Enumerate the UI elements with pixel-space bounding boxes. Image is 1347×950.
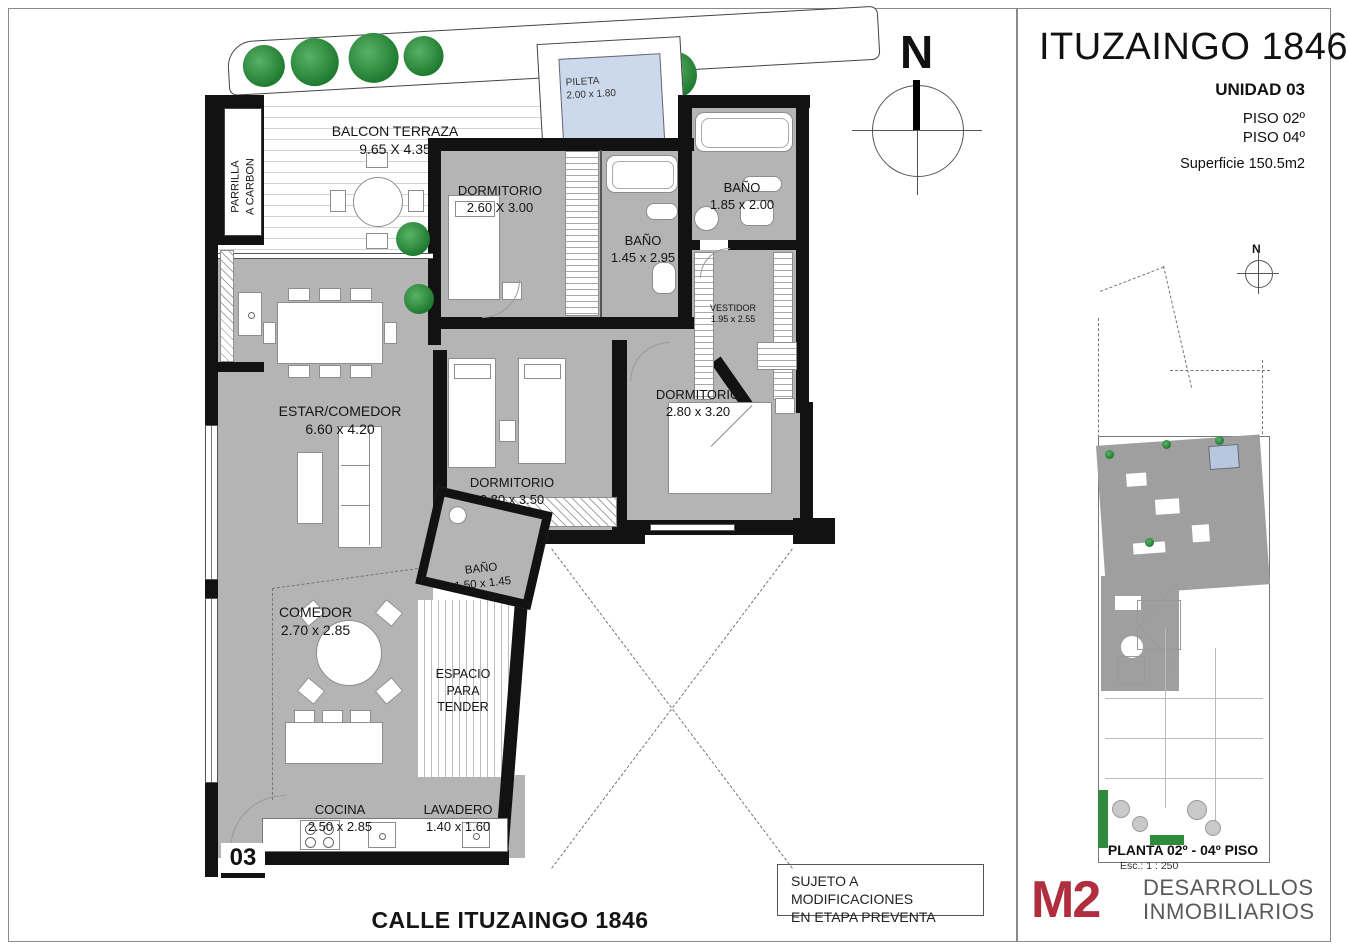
bed [448,358,496,468]
mini-plant [1162,440,1171,449]
pillow [524,364,561,379]
grill-sink [238,292,262,336]
nightstand [775,398,795,414]
chair [350,288,372,301]
grill-niche [220,250,234,362]
room-label-bano-2: BAÑO1.85 x 2.00 [687,163,797,231]
chair [408,190,424,212]
page-title: ITUZAINGO 1846 [1039,26,1347,69]
floor-label-1: PISO 02º [1243,110,1305,127]
mini-room-line [1165,628,1166,808]
mini-compass-n: N [1252,242,1261,256]
wall [428,317,694,329]
mini-compass-circle [1245,260,1273,288]
chair [288,288,310,301]
wall [796,245,809,413]
room-label-bano-1: BAÑO1.45 x 2.95 [593,216,693,284]
logo-wordmark: DESARROLLOS INMOBILIARIOS [1143,876,1315,924]
coffee-table [297,452,323,524]
room-label-dormitorio-3: DORMITORIO2.80 x 3.50 [442,458,582,526]
chair [319,288,341,301]
room-label-dormitorio-2: DORMITORIO2.80 x 3.20 [628,370,768,438]
plant [402,35,444,77]
wall [678,95,810,108]
mini-tree [1187,800,1207,820]
kitchen-island [285,722,383,764]
floor-label-2: PISO 04º [1243,129,1305,146]
stool [350,710,371,723]
plant [404,284,434,314]
mini-room-line [1105,738,1263,739]
window [650,524,735,531]
mini-compass-line [1258,252,1259,294]
room-label-pileta: PILETA2.00 x 1.80 [565,60,638,116]
window [205,598,218,783]
chair [263,322,276,344]
tub-inner [701,118,789,148]
compass-n-letter: N [900,25,933,79]
chair [319,365,341,378]
chair [350,365,372,378]
mini-room-line [1215,648,1216,823]
chair [330,190,346,212]
sofa-cushion-line [341,505,369,506]
unit-number-badge: 03 [221,843,265,878]
glass-wall [218,253,433,259]
mini-plan-caption: PLANTA 02º - 04º PISO [1103,842,1263,858]
closet [773,252,793,400]
room-label-cocina: COCINA2.50 x 2.85 [290,785,390,853]
mini-furniture [1192,524,1210,542]
wall [796,108,809,248]
room-label-parrilla: PARRILLA A CARBON [214,127,271,247]
mini-plant [1105,450,1114,459]
room-label-comedor: COMEDOR2.70 x 2.85 [273,585,358,658]
mini-tree [1112,800,1130,818]
room-label-lavadero: LAVADERO1.40 x 1.60 [406,785,510,853]
parrilla-box: PARRILLA A CARBON [224,108,262,236]
mini-plant [1145,538,1154,547]
disclaimer-box: SUJETO A MODIFICACIONES EN ETAPA PREVENT… [777,864,984,916]
bathtub [606,155,678,193]
logo-line2: INMOBILIARIOS [1143,900,1315,924]
sofa-cushion-line [341,465,369,466]
room-label-dormitorio-1: DORMITORIO2.60 X 3.00 [430,166,570,234]
stool [294,710,315,723]
mini-plan-scale: Esc.: 1 : 250 [1120,860,1178,872]
mini-furniture [1155,498,1180,515]
chair [288,365,310,378]
mini-lot-line [1170,370,1270,371]
closet [757,342,797,370]
mini-plant [1215,436,1224,445]
pillow [454,364,491,379]
room-label-tender: ESPACIO PARA TENDER [423,650,503,731]
mini-unit-footprint [1096,434,1270,595]
info-panel: ITUZAINGO 1846 UNIDAD 03 PISO 02º PISO 0… [1017,8,1331,942]
mini-stairs [1137,600,1181,650]
mini-tree [1205,820,1221,836]
chair [384,322,397,344]
street-label: CALLE ITUZAINGO 1846 [330,876,690,950]
disclaimer-line1: SUJETO A MODIFICACIONES [791,872,983,908]
logo-line1: DESARROLLOS [1143,876,1315,900]
mini-pool [1208,444,1240,470]
room-label-vestidor: VESTIDOR1.95 x 2.55 [693,291,773,338]
room-label-bano-3: BAÑO1.50 x 1.45 [434,542,530,611]
mini-room-line [1105,778,1263,779]
window [205,425,218,580]
chair [366,233,388,249]
mini-elevator [1117,656,1145,684]
plant [289,37,340,88]
plant [242,44,286,88]
wall [218,362,264,372]
disclaimer-line2: EN ETAPA PREVENTA [791,908,983,926]
bathtub [695,112,793,152]
dining-table [277,302,383,364]
balcony-table [353,177,403,227]
nightstand [499,420,516,442]
mini-tree [1132,816,1148,832]
bed [518,358,566,464]
mini-green-strip [1098,790,1108,848]
mini-furniture [1126,472,1147,486]
plant [347,31,400,84]
compass-needle [913,80,920,130]
wall [800,402,813,534]
unit-number: 03 [230,844,257,871]
m2-logo-mark: M2 [1031,870,1099,930]
room-label-estar: ESTAR/COMEDOR6.60 x 4.20 [250,384,430,457]
tub-inner [612,161,674,189]
surface-label: Superficie 150.5m2 [1180,156,1305,172]
unit-label: UNIDAD 03 [1215,80,1305,100]
mini-room-line [1105,698,1263,699]
floor-plan-page: PILETA2.00 x 1.80 PARRILLA A [0,0,1347,950]
drain-dot [248,312,255,319]
mini-lot-line [1100,267,1164,292]
plant [396,222,430,256]
mini-site-plan: N [1017,228,1331,828]
stool [322,710,343,723]
north-compass: N [852,25,982,200]
